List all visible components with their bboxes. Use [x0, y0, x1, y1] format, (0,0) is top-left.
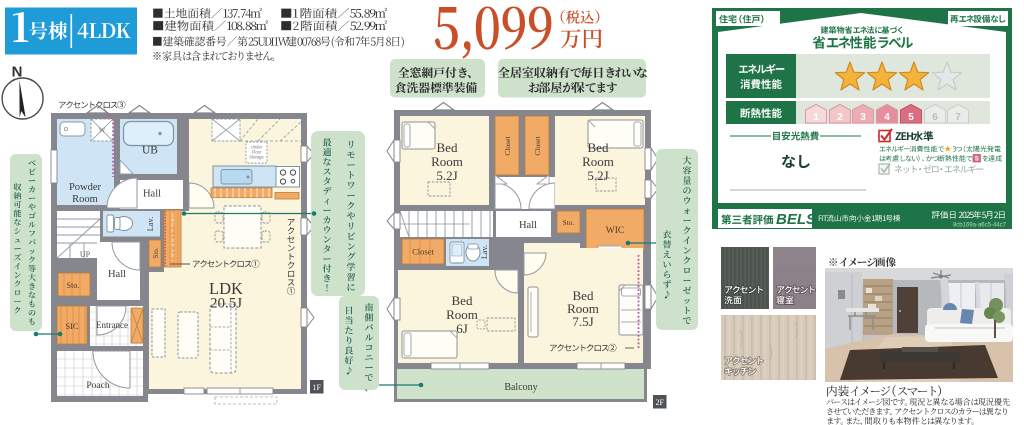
svg-text:5: 5: [908, 112, 914, 123]
svg-text:5: 5: [975, 156, 979, 163]
svg-text:UP: UP: [80, 250, 91, 259]
svg-text:Hall: Hall: [519, 220, 537, 231]
svg-text:UB: UB: [142, 145, 158, 157]
svg-text:SIC: SIC: [65, 321, 79, 331]
svg-text:Room: Room: [582, 154, 614, 169]
svg-text:Bed: Bed: [588, 140, 609, 155]
svg-text:Hall: Hall: [143, 189, 161, 200]
svg-text:Room: Room: [446, 307, 478, 322]
svg-text:Sto.: Sto.: [67, 281, 80, 290]
svg-text:Bed: Bed: [452, 293, 473, 308]
svg-text:2: 2: [837, 112, 843, 123]
svg-text:8cb169a-a6c5-44c7: 8cb169a-a6c5-44c7: [953, 223, 1007, 229]
svg-text:5.2J: 5.2J: [436, 168, 457, 183]
svg-text:7.5J: 7.5J: [572, 314, 593, 329]
svg-text:7: 7: [955, 112, 961, 123]
svg-text:6: 6: [932, 112, 938, 123]
svg-text:Powder: Powder: [69, 182, 102, 193]
svg-text:Poach: Poach: [86, 381, 109, 391]
svg-text:Room: Room: [431, 154, 463, 169]
svg-text:W: W: [99, 127, 106, 135]
svg-text:Room: Room: [72, 194, 98, 205]
svg-text:5.2J: 5.2J: [587, 168, 608, 183]
svg-text:BELS: BELS: [776, 211, 816, 228]
svg-text:Balcony: Balcony: [504, 382, 537, 393]
svg-text:4: 4: [884, 112, 890, 123]
svg-text:Closet: Closet: [533, 136, 542, 156]
svg-text:1F: 1F: [312, 383, 321, 392]
svg-text:Lav.: Lav.: [480, 245, 489, 259]
svg-text:WIC: WIC: [606, 226, 624, 236]
svg-text:Storage: Storage: [249, 155, 264, 160]
svg-text:N: N: [12, 64, 23, 81]
svg-text:Sto.: Sto.: [152, 247, 160, 258]
svg-text:Closet: Closet: [503, 136, 512, 156]
svg-text:Hall: Hall: [108, 269, 126, 280]
svg-text:2F: 2F: [655, 398, 664, 407]
svg-text:6J: 6J: [456, 321, 468, 336]
svg-text:1: 1: [813, 112, 819, 123]
svg-text:Bed: Bed: [437, 140, 458, 155]
svg-text:Sto.: Sto.: [563, 218, 575, 227]
svg-text:3: 3: [860, 112, 866, 123]
svg-text:Entrance: Entrance: [96, 320, 128, 330]
svg-text:20.5J: 20.5J: [210, 296, 242, 312]
svg-text:Closet: Closet: [412, 247, 434, 257]
svg-text:Lav.: Lav.: [145, 217, 155, 232]
